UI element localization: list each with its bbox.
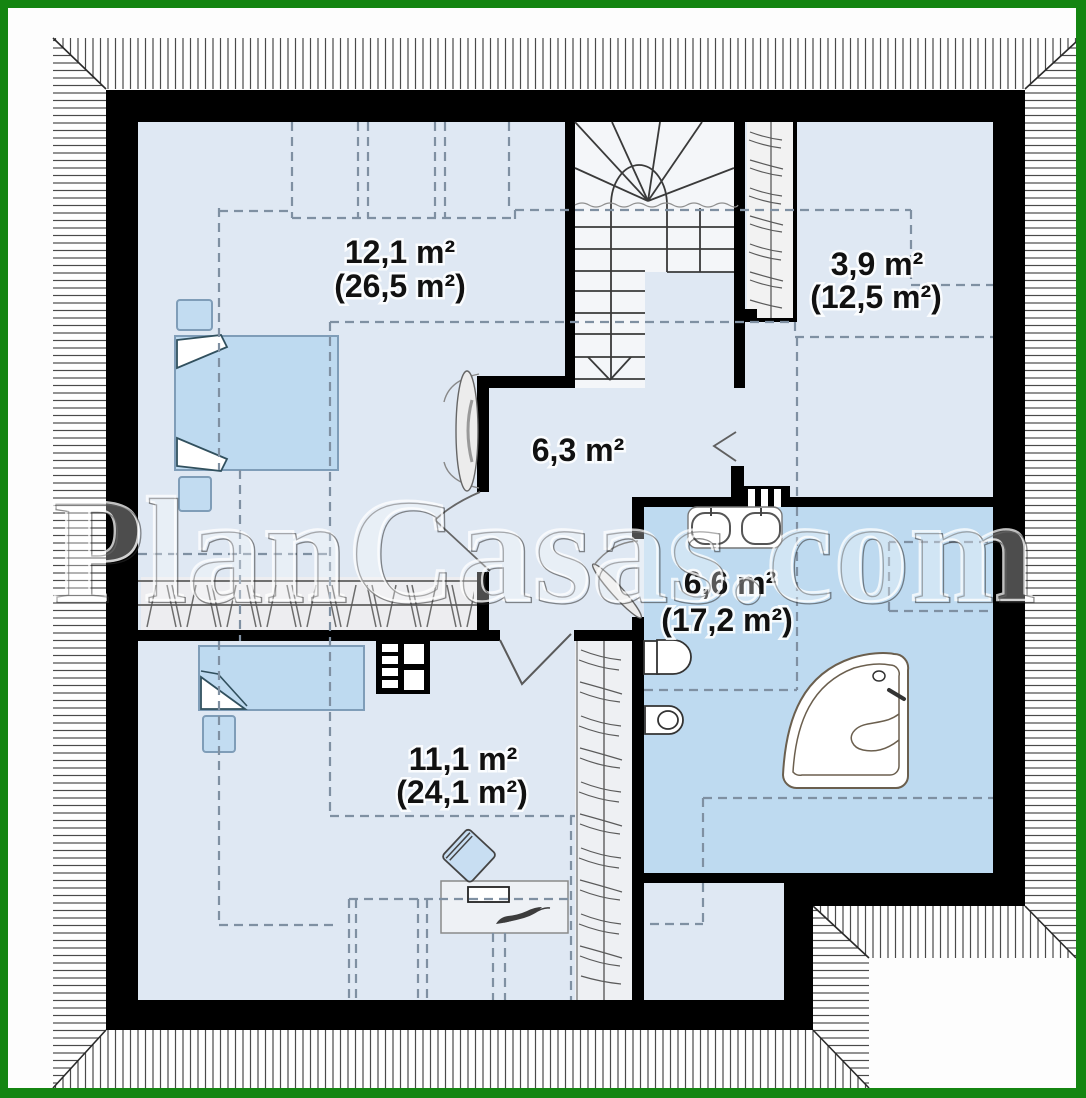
svg-text:3,9 m²: 3,9 m² [831,246,923,282]
svg-text:(12,5 m²): (12,5 m²) [810,279,942,315]
svg-text:PlanCasas.com: PlanCasas.com [52,468,1035,634]
svg-text:(26,5 m²): (26,5 m²) [334,268,466,304]
svg-text:6,3 m²: 6,3 m² [532,432,624,468]
svg-text:(24,1 m²): (24,1 m²) [396,774,528,810]
svg-text:12,1 m²: 12,1 m² [345,234,455,270]
svg-text:11,1 m²: 11,1 m² [409,741,518,777]
